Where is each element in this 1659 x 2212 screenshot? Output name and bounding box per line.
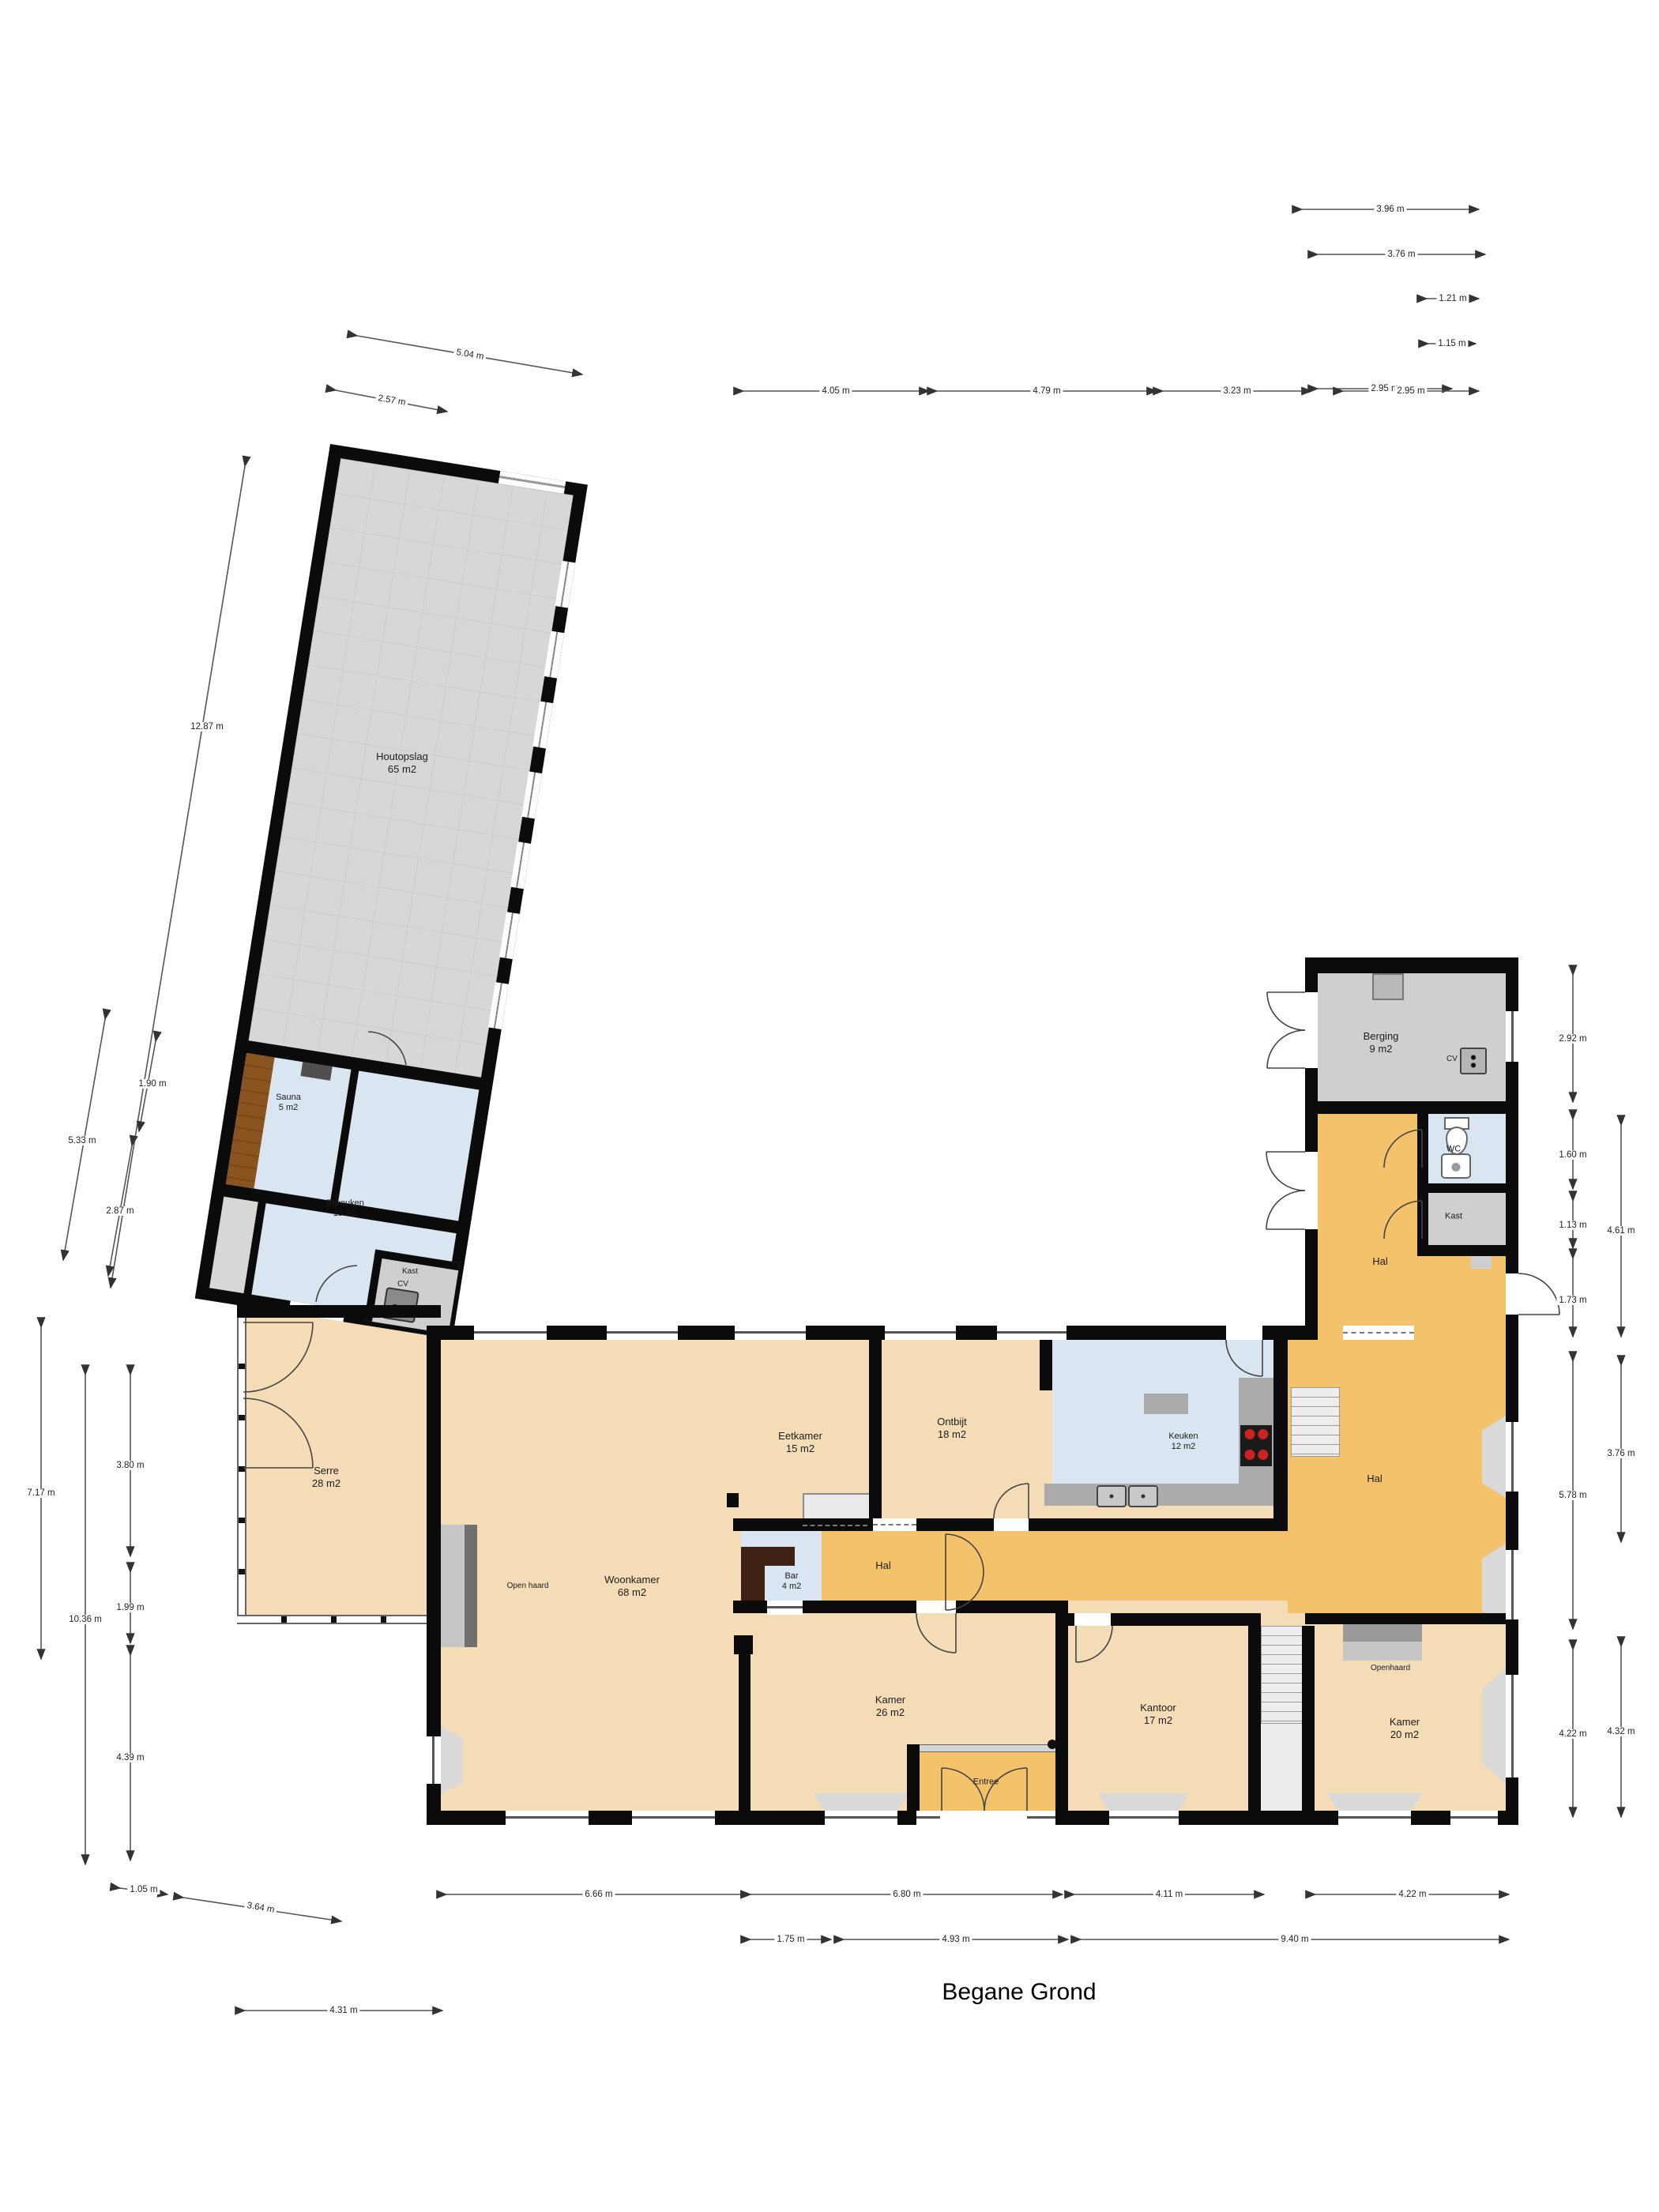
dimension-label: 1.05 m (127, 1885, 160, 1894)
room-label-houtopslag: Houtopslag65 m2 (376, 750, 428, 776)
dimension-label: 4.31 m (327, 2006, 359, 2015)
dimension-label: 1.73 m (1556, 1296, 1589, 1305)
room-label-kamer20: Kamer20 m2 (1390, 1716, 1420, 1741)
dimension-label: 7.17 m (24, 1488, 57, 1498)
dimension-label: 6.80 m (890, 1890, 923, 1899)
dimension-label: 4.22 m (1396, 1890, 1428, 1899)
dimension-label: 9.40 m (1278, 1935, 1311, 1944)
dimension-label: 4.93 m (939, 1935, 972, 1944)
dimension-label: 1.75 m (774, 1935, 807, 1944)
dimension-label: 4.39 m (114, 1753, 146, 1762)
room-label-hal-right: Hal (1367, 1473, 1382, 1485)
dimension-label: 1.99 m (114, 1603, 146, 1612)
dimension-label: 1.60 m (1556, 1150, 1589, 1160)
dimension-label: 3.96 m (1374, 205, 1406, 214)
dimension-label: 4.05 m (819, 386, 852, 396)
dimension-label: 5.78 m (1556, 1491, 1589, 1500)
room-label-eetkamer: Eetkamer15 m2 (778, 1430, 822, 1455)
room-label-wc: WC (1446, 1145, 1461, 1155)
dimension-label: 4.22 m (1556, 1729, 1589, 1739)
dimension-label: 3.76 m (1604, 1449, 1637, 1458)
room-label-bar: Bar4 m2 (782, 1571, 801, 1592)
dimension-label: 6.66 m (582, 1890, 615, 1899)
dimension-label: 4.61 m (1604, 1226, 1637, 1236)
dimension-label: 4.11 m (1153, 1890, 1185, 1899)
door-arcs (243, 992, 1559, 1811)
label-open-haard-west: Open haard (507, 1582, 549, 1591)
room-label-hal-corridor: Hal (875, 1559, 891, 1572)
room-label-ontbijt: Ontbijt18 m2 (937, 1416, 967, 1441)
room-label-bijkeuken: Bijkeuken15 m2 (326, 1198, 364, 1219)
label-cv-barn: CV (397, 1280, 408, 1289)
room-label-serre: Serre28 m2 (312, 1465, 340, 1490)
room-label-hal-annex: Hal (1372, 1255, 1388, 1268)
room-label-woonkamer: Woonkamer68 m2 (604, 1574, 660, 1599)
dimension-label: 4.79 m (1030, 386, 1063, 396)
room-label-keuken: Keuken12 m2 (1168, 1431, 1198, 1452)
room-label-kast-barn: Kast (402, 1267, 418, 1277)
dimension-label: 12.87 m (188, 722, 226, 732)
dimension-label: 4.32 m (1604, 1727, 1637, 1736)
dimension-label: 1.90 m (136, 1079, 168, 1089)
page-title: Begane Grond (942, 1979, 1096, 2006)
dimension-and-door-layer (0, 0, 1659, 2212)
room-label-kantoor: Kantoor17 m2 (1140, 1702, 1176, 1727)
label-cv-annex: CV (1446, 1055, 1458, 1064)
room-label-berging: Berging9 m2 (1364, 1030, 1399, 1055)
room-label-kast-annex: Kast (1445, 1212, 1462, 1222)
room-label-kamer26: Kamer26 m2 (875, 1694, 905, 1719)
dimension-label: 2.92 m (1556, 1034, 1589, 1044)
room-label-sauna: Sauna5 m2 (276, 1093, 301, 1113)
dimension-label: 10.36 m (66, 1615, 104, 1624)
dimension-label: 2.95 m (1394, 386, 1427, 396)
dimension-label: 3.76 m (1385, 250, 1417, 259)
dimension-label: 2.87 m (103, 1206, 136, 1216)
room-label-entree: Entree (973, 1777, 999, 1788)
dimension-label: 5.33 m (66, 1136, 98, 1145)
floorplan-page: Houtopslag65 m2 Sauna5 m2 Bijkeuken15 m2… (0, 0, 1659, 2212)
label-openhaard-kamer20: Openhaard (1371, 1664, 1410, 1673)
dimension-label: 1.21 m (1436, 294, 1469, 303)
dimension-label: 3.23 m (1221, 386, 1253, 396)
dimension-label: 1.13 m (1556, 1221, 1589, 1230)
dimension-label: 3.80 m (114, 1461, 146, 1470)
dimension-label: 1.15 m (1435, 339, 1468, 348)
